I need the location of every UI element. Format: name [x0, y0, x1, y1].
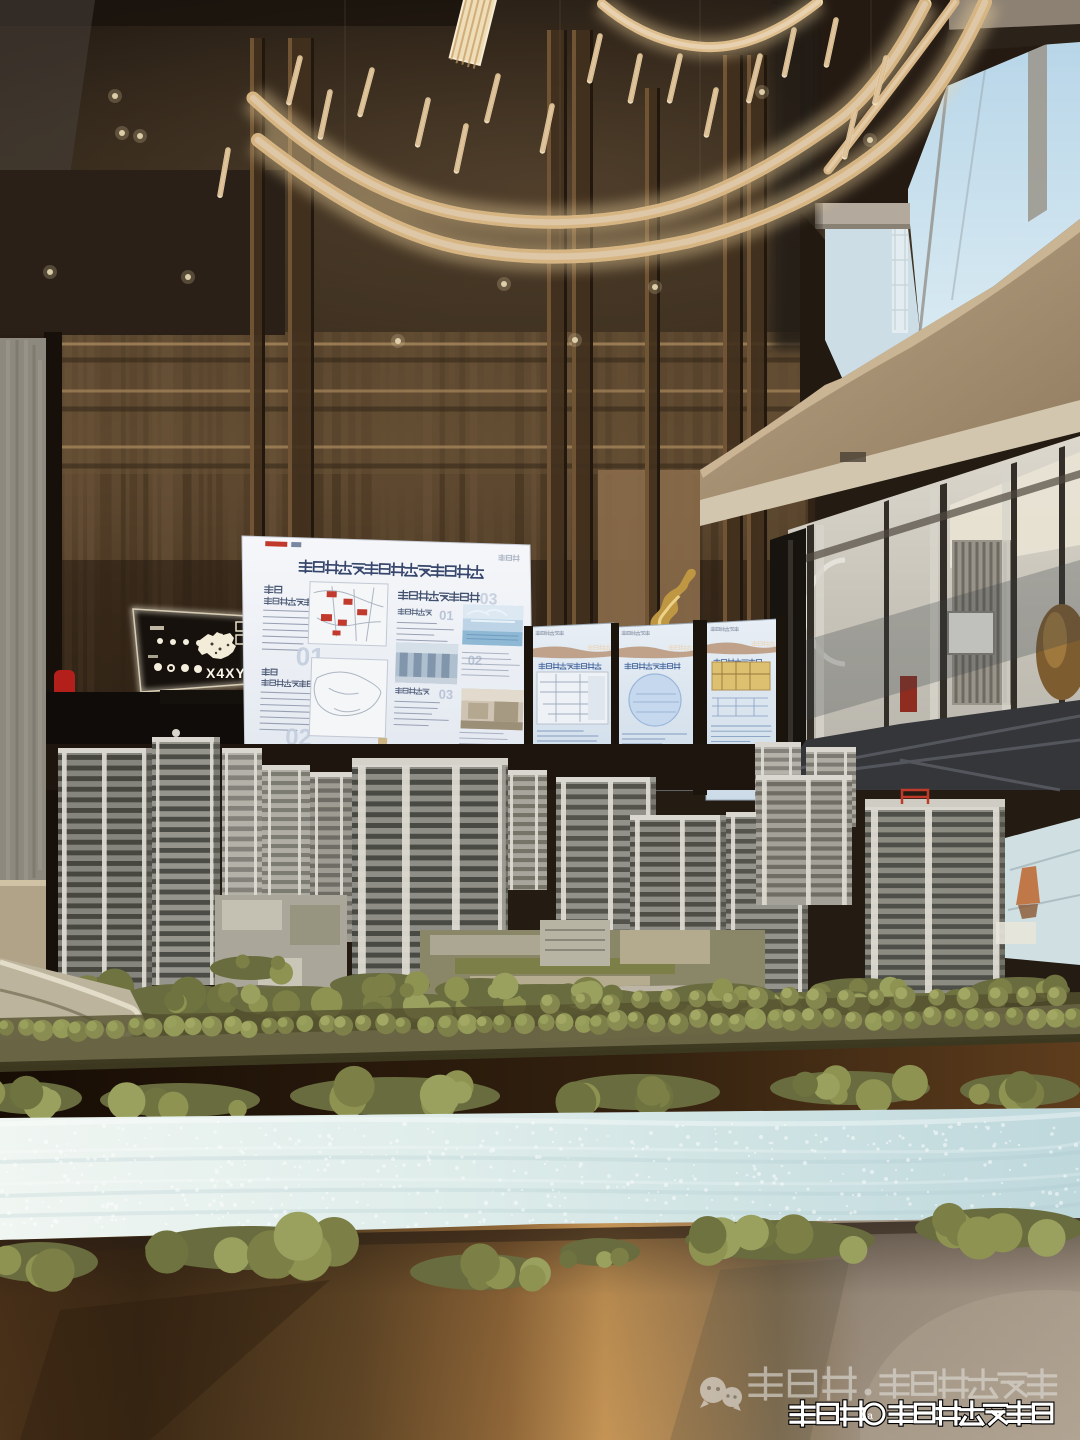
svg-text:01: 01	[439, 608, 454, 623]
svg-text:02: 02	[467, 653, 482, 668]
svg-text:03: 03	[438, 687, 453, 702]
svg-text:a: a	[867, 1411, 873, 1422]
